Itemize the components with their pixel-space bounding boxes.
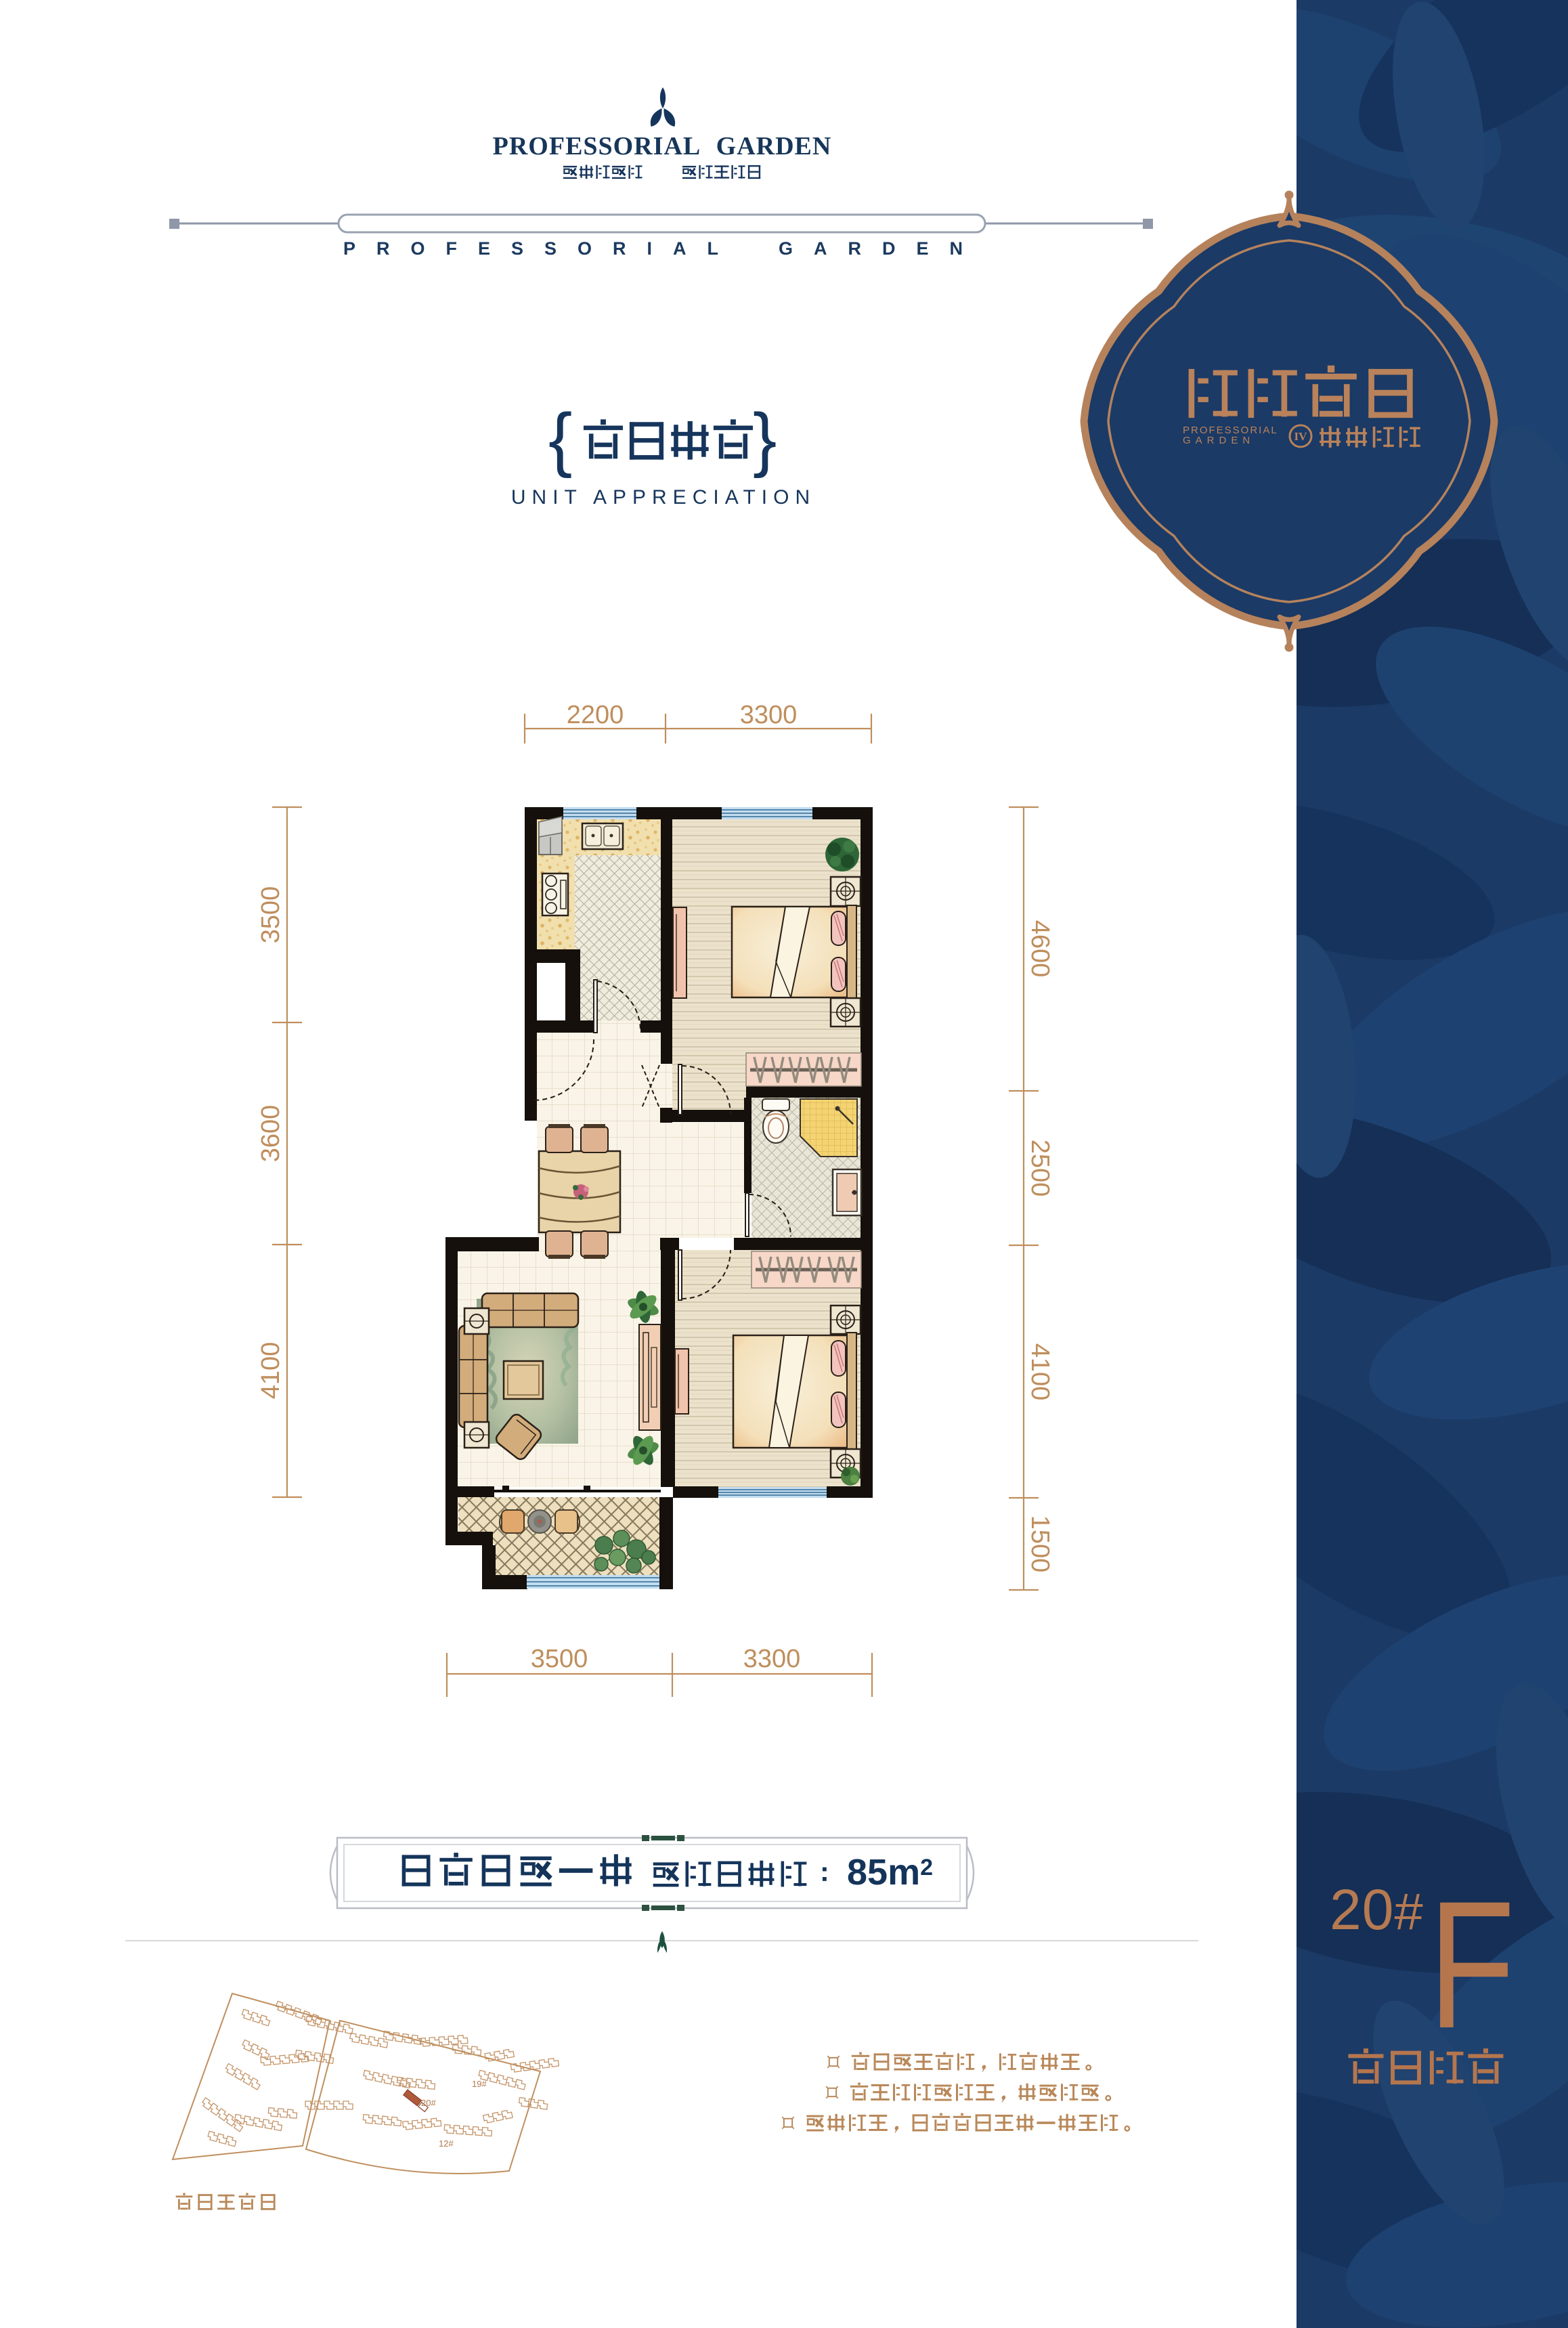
svg-text:3500: 3500: [257, 886, 285, 944]
svg-text:19#: 19#: [472, 2079, 487, 2089]
svg-text:12#: 12#: [439, 2138, 454, 2149]
svg-text:20#: 20#: [421, 2098, 436, 2108]
svg-text:2500: 2500: [1026, 1140, 1054, 1197]
svg-text:3300: 3300: [743, 1645, 801, 1673]
svg-text:4100: 4100: [257, 1342, 285, 1400]
svg-text:1500: 1500: [1026, 1515, 1054, 1573]
svg-text:3300: 3300: [740, 701, 798, 729]
svg-text:4100: 4100: [1026, 1343, 1054, 1401]
svg-text:3500: 3500: [531, 1645, 588, 1673]
svg-text:IV: IV: [1294, 430, 1308, 443]
svg-text:3600: 3600: [257, 1105, 285, 1163]
svg-text:4600: 4600: [1026, 920, 1054, 978]
svg-text:2200: 2200: [567, 701, 624, 729]
